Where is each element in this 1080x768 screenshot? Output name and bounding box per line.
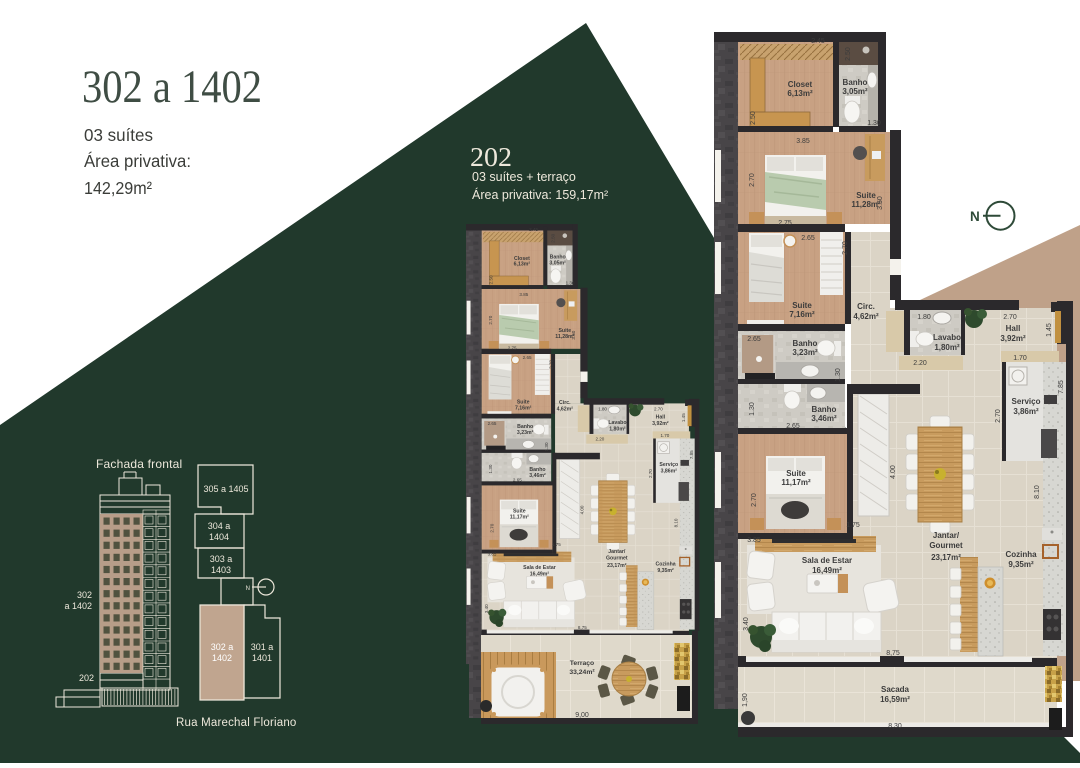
svg-text:304 a: 304 a: [208, 521, 231, 531]
svg-text:a 1402: a 1402: [64, 601, 92, 611]
svg-text:Terraço: Terraço: [570, 660, 594, 667]
svg-text:8,30: 8,30: [888, 723, 902, 730]
svg-text:Área privativa:: Área privativa:: [84, 151, 191, 171]
svg-text:1403: 1403: [211, 565, 231, 575]
svg-text:301 a: 301 a: [251, 642, 274, 652]
svg-text:303 a: 303 a: [210, 554, 233, 564]
svg-text:1404: 1404: [209, 532, 229, 542]
svg-text:202: 202: [79, 673, 94, 683]
svg-text:302 a 1402: 302 a 1402: [82, 61, 262, 113]
svg-text:1402: 1402: [212, 653, 232, 663]
svg-text:03 suítes: 03 suítes: [84, 125, 153, 145]
svg-text:N: N: [970, 209, 980, 224]
svg-text:302: 302: [77, 590, 92, 600]
svg-text:33,24m²: 33,24m²: [569, 669, 595, 676]
svg-text:302 a: 302 a: [211, 642, 234, 652]
svg-text:305 a 1405: 305 a 1405: [203, 484, 248, 494]
svg-text:1401: 1401: [252, 653, 272, 663]
svg-text:16,59m²: 16,59m²: [880, 695, 910, 704]
svg-text:1,90: 1,90: [742, 693, 749, 707]
svg-text:Sacada: Sacada: [881, 685, 910, 694]
svg-text:Fachada frontal: Fachada frontal: [96, 457, 182, 471]
svg-text:202: 202: [470, 142, 512, 172]
svg-text:Área privativa: 159,17m²: Área privativa: 159,17m²: [472, 187, 608, 202]
svg-text:142,29m²: 142,29m²: [84, 178, 152, 198]
svg-text:03 suítes + terraço: 03 suítes + terraço: [472, 170, 576, 184]
svg-text:N: N: [246, 586, 250, 592]
svg-text:9,00: 9,00: [575, 712, 589, 719]
svg-text:Rua Marechal Floriano: Rua Marechal Floriano: [176, 717, 297, 729]
